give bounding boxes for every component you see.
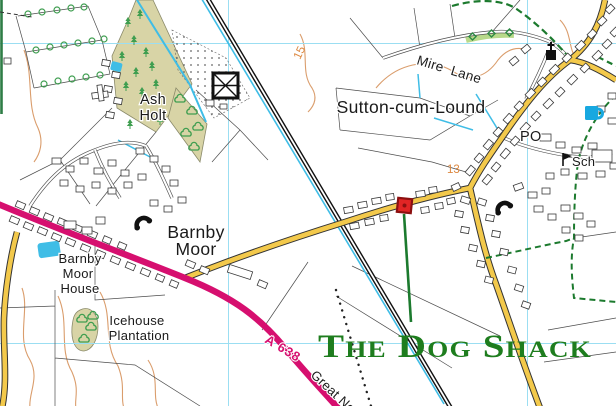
label-sutton-cum-lound: Sutton-cum-Lound	[337, 97, 486, 117]
label-school: Sch	[572, 154, 595, 169]
glasshouse-icon	[213, 73, 238, 98]
pond	[37, 241, 61, 259]
label-icehouse-2: Plantation	[109, 328, 170, 343]
map-canvas[interactable]: Sutton-cum-Lound Barnby Moor Ash Holt Ba…	[0, 0, 616, 406]
label-ash-holt-1: Ash	[140, 92, 166, 108]
label-post-office: PO	[520, 129, 542, 145]
label-barnby-moor-2: Moor	[175, 239, 216, 259]
annotation-title: The Dog Shack	[318, 329, 592, 365]
location-marker[interactable]	[397, 198, 412, 213]
label-barnby-moor-house-3: House	[60, 281, 99, 296]
label-barnby-moor-house-2: Moor	[63, 266, 94, 281]
label-icehouse-1: Icehouse	[109, 313, 164, 328]
label-barnby-moor-house-1: Barnby	[59, 251, 102, 266]
church-icon	[546, 42, 556, 60]
label-ash-holt-2: Holt	[140, 108, 167, 124]
barnby-moor-house-building	[64, 221, 76, 229]
map-frame: Sutton-cum-Lound Barnby Moor Ash Holt Ba…	[0, 0, 616, 406]
label-contour-13: 13	[447, 164, 460, 176]
